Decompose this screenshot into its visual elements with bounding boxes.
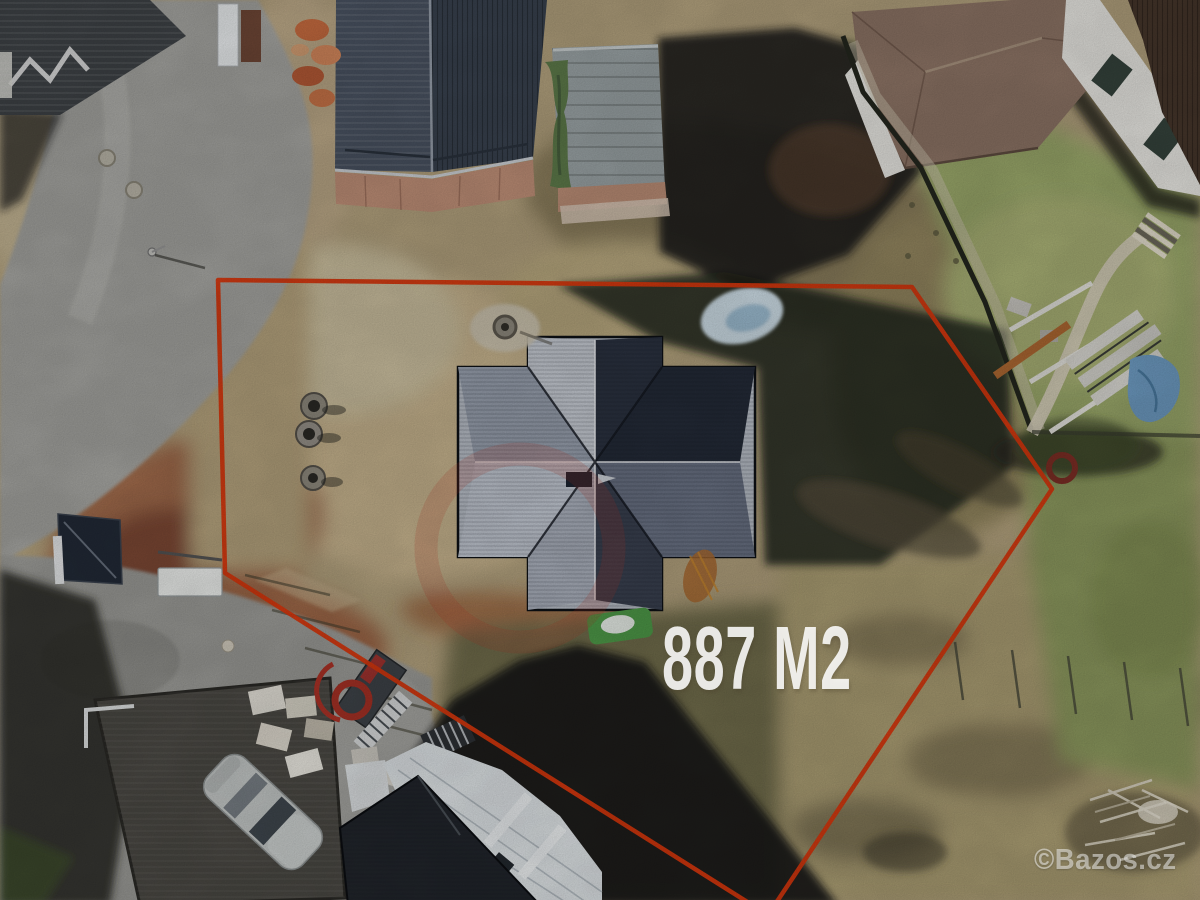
grain-overlay — [0, 0, 1200, 900]
area-label: 887 M2 — [662, 614, 852, 704]
aerial-photo-stage: 887 M2 ©Bazos.cz — [0, 0, 1200, 900]
watermark: ©Bazos.cz — [1034, 844, 1176, 877]
aerial-photo — [0, 0, 1200, 900]
